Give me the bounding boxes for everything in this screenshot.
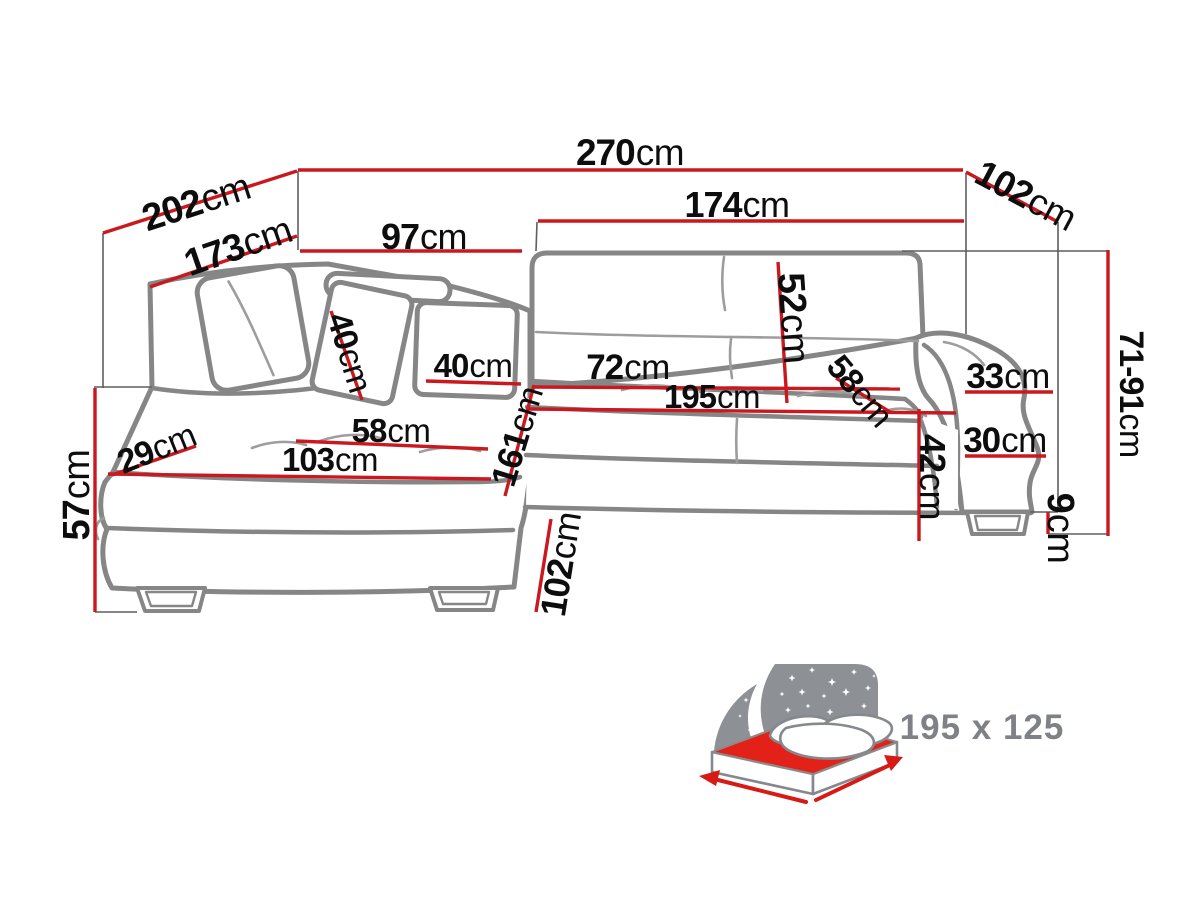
bed-size-label: 195 x 125 [900, 708, 1065, 747]
dimension-label-195: 195cm [664, 378, 760, 415]
ext-174-left-tick [536, 222, 537, 251]
dimension-label-9: 9cm [1039, 493, 1081, 564]
bed-duvet [780, 724, 874, 759]
diagram-canvas: 270cm 202cm 173cm 97cm 174cm 102cm 52cm … [0, 0, 1200, 900]
dimension-label-174: 174cm [684, 184, 789, 225]
dimension-label-52: 52cm [769, 271, 817, 365]
bed-arrow-left-head [699, 770, 720, 786]
dimension-label-33: 33cm [966, 357, 1050, 396]
front-band-seam [736, 419, 737, 463]
dimension-label-58-left: 58cm [352, 412, 431, 449]
bed-icon: 195 x 125 [699, 662, 1064, 802]
headrest-cushion [195, 263, 311, 392]
dimension-label-102-top: 102cm [968, 152, 1083, 239]
dimension-label-71-91: 71-91cm [1112, 330, 1150, 457]
dimension-label-30: 30cm [963, 421, 1047, 460]
dimension-label-57: 57cm [56, 450, 98, 541]
dimension-label-97: 97cm [381, 216, 467, 257]
dimension-label-42: 42cm [912, 434, 953, 520]
dimension-label-40-pillow-b: 40cm [434, 347, 513, 384]
sofa-dimension-diagram: 270cm 202cm 173cm 97cm 174cm 102cm 52cm … [0, 0, 1200, 900]
dimension-label-102-front: 102cm [532, 509, 589, 619]
dimension-label-270: 270cm [576, 132, 684, 173]
dimension-label-72: 72cm [586, 348, 670, 387]
